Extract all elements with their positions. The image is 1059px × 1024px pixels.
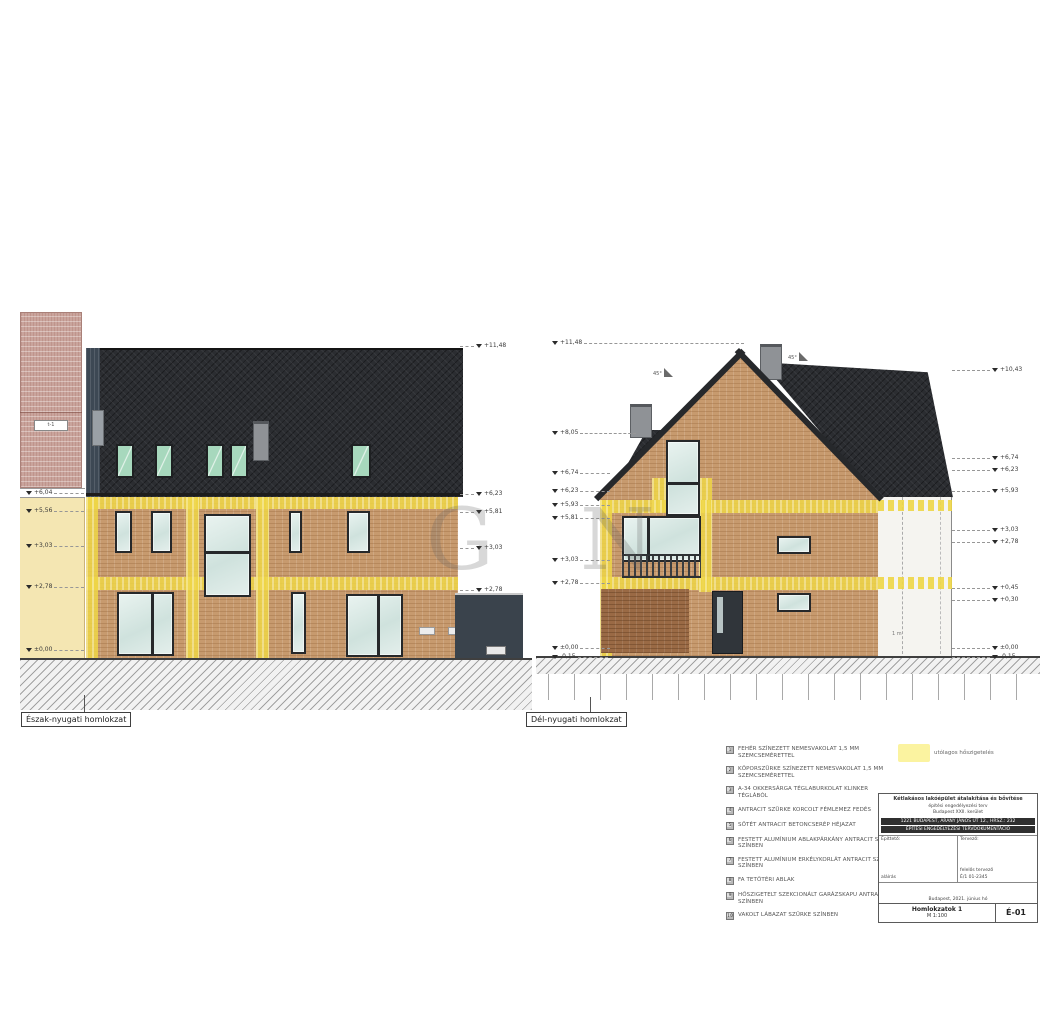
plaster-note: 1 m	[892, 631, 902, 637]
level-mark: +6,74	[552, 468, 610, 478]
level-value: +6,23	[560, 488, 578, 494]
neighbor-tag-plate: t-1	[34, 420, 68, 431]
material-cube-icon: 3	[726, 786, 734, 794]
window-upper-3	[289, 511, 302, 553]
level-mark: +6,23	[552, 486, 610, 496]
level-value: +3,03	[484, 545, 502, 551]
neighbor-divider-line	[20, 412, 82, 413]
level-value: +3,03	[560, 557, 578, 563]
elevation-label-right: Dél-nyugati homlokzat	[526, 712, 627, 727]
level-value: +6,23	[1000, 467, 1018, 473]
level-triangle-icon	[992, 586, 998, 593]
legend-item: 3A-34 OKKERSÁRGA TÉGLABURKOLAT KLINKER T…	[726, 786, 898, 799]
title-block: Kétlakásos lakóépület átalakítása és bőv…	[878, 793, 1038, 923]
level-value: ±0,00	[1000, 645, 1018, 651]
insulation-band-mid	[86, 577, 458, 590]
level-value: -0,15	[1000, 654, 1016, 660]
legend-item: 1FEHÉR SZÍNEZETT NEMESVAKOLAT 1,5 MM SZE…	[726, 746, 898, 759]
level-mark: +5,93	[552, 500, 610, 510]
highlight-label: utólagos hőszigetelés	[934, 750, 994, 756]
designer-label: Tervező:	[960, 837, 1035, 842]
level-triangle-icon	[26, 491, 32, 498]
level-value: +5,93	[1000, 488, 1018, 494]
highlight-swatch	[898, 744, 930, 762]
neighbor-wall-cream	[20, 498, 85, 660]
level-triangle-icon	[26, 648, 32, 655]
level-mark: +2,78	[460, 585, 502, 595]
legend-item: 2KŐPORSZÜRKE SZÍNEZETT NEMESVAKOLAT 1,5 …	[726, 766, 898, 779]
leader-line	[460, 346, 474, 347]
leader-line	[580, 560, 610, 561]
level-value: ±0,00	[560, 645, 578, 651]
label-leader-left	[84, 695, 85, 712]
material-cube-icon: 2	[726, 766, 734, 774]
skylight-3	[206, 444, 224, 478]
window-upper-2	[151, 511, 172, 553]
legend-item-text: SÖTÉT ANTRACIT BETONCSERÉP HÉJAZAT	[738, 822, 856, 829]
leader-line	[952, 648, 990, 649]
level-value: +6,74	[1000, 455, 1018, 461]
material-cube-icon: 10	[726, 912, 734, 920]
window-lower-2	[291, 592, 306, 654]
neighbor-tag-text: t-1	[48, 422, 55, 428]
leader-line	[952, 600, 990, 601]
leader-line	[580, 433, 636, 434]
sheet-number: É-01	[995, 904, 1037, 922]
strip-window-1	[777, 536, 811, 554]
level-mark: -0,15	[952, 652, 1016, 662]
leader-line	[460, 494, 474, 495]
neighbor-building-pink	[20, 312, 82, 488]
skylight-1	[116, 444, 134, 478]
garage	[455, 593, 523, 659]
legend-item: 9HŐSZIGETELT SZEKCIONÁLT GARÁZSKAPU ANTR…	[726, 892, 898, 905]
level-mark: +2,78	[952, 537, 1018, 547]
level-triangle-icon	[552, 341, 558, 348]
material-cube-icon: 6	[726, 837, 734, 845]
material-cube-icon: 4	[726, 807, 734, 815]
material-cube-icon: 1	[726, 746, 734, 754]
level-mark: +2,78	[552, 578, 610, 588]
leader-line	[952, 542, 990, 543]
leader-line	[580, 491, 610, 492]
level-value: +8,05	[560, 430, 578, 436]
leader-line	[580, 648, 610, 649]
level-triangle-icon	[992, 540, 998, 547]
documentation-bar: ÉPÍTÉSI ENGEDÉLYEZÉSI TERVDOKUMENTÁCIÓ	[881, 826, 1035, 833]
designer-license: É/1 01-2345	[960, 875, 1035, 881]
level-mark: +5,81	[460, 507, 502, 517]
ground-hatch-left	[20, 658, 532, 710]
level-value: +6,04	[34, 490, 52, 496]
window-stairwell	[204, 514, 251, 597]
sheet-scale: M 1:100	[879, 913, 995, 919]
level-mark: +11,48	[552, 338, 744, 348]
leader-line	[952, 588, 990, 589]
legend-item: 8FA TETŐTÉRI ABLAK	[726, 877, 898, 885]
level-mark: +10,43	[952, 365, 1022, 375]
window-upper-1	[115, 511, 132, 553]
insulation-band-top	[86, 497, 458, 509]
level-value: +11,48	[560, 340, 582, 346]
title-block-body: Építtető: aláírás Tervező: felelős terve…	[879, 835, 1037, 883]
level-triangle-icon	[992, 468, 998, 475]
insulation-strip-3	[256, 497, 269, 660]
level-triangle-icon	[992, 368, 998, 375]
level-triangle-icon	[26, 509, 32, 516]
level-value: +2,78	[34, 584, 52, 590]
level-value: +2,78	[1000, 539, 1018, 545]
gable-window	[666, 440, 700, 516]
level-value: +5,81	[560, 515, 578, 521]
level-triangle-icon	[26, 585, 32, 592]
balcony-railing	[622, 554, 701, 578]
legend-item-text: ANTRACIT SZÜRKE KORCOLT FÉMLEMEZ FEDÉS	[738, 807, 871, 814]
insulation-band-gable-top	[600, 500, 878, 513]
roof-pitch-symbol: 45°	[788, 352, 808, 361]
level-triangle-icon	[992, 489, 998, 496]
insulation-band-dashed-mid	[878, 577, 952, 589]
chimney-left-roof	[253, 421, 269, 461]
window-mullion	[151, 594, 154, 654]
legend-item-text: FESTETT ALUMÍNIUM ABLAKPÁRKÁNY ANTRACIT …	[738, 837, 898, 850]
level-value: +10,43	[1000, 367, 1022, 373]
leader-line	[952, 530, 990, 531]
material-cube-icon: 9	[726, 892, 734, 900]
level-triangle-icon	[552, 471, 558, 478]
insulation-band-dashed-top	[878, 500, 952, 511]
level-mark: +8,05	[552, 428, 636, 438]
level-triangle-icon	[992, 598, 998, 605]
window-transom	[206, 551, 249, 554]
level-triangle-icon	[552, 581, 558, 588]
elevation-label-left-text: Észak-nyugati homlokzat	[26, 715, 126, 724]
level-value: +6,23	[484, 491, 502, 497]
level-value: +5,81	[484, 509, 502, 515]
address-bar: 1221 BUDAPEST, ARANY JÁNOS ÚT 12., HRSZ.…	[881, 818, 1035, 825]
level-mark: +5,81	[552, 513, 610, 523]
slope-triangle-icon	[664, 368, 673, 377]
roof-pitch-value: 45°	[788, 355, 797, 361]
leader-line	[952, 491, 990, 492]
level-triangle-icon	[476, 546, 482, 553]
client-note: aláírás	[881, 875, 955, 881]
front-door	[712, 591, 743, 654]
sliding-door	[346, 594, 403, 657]
sheet-title: Homlokzatok 1	[879, 906, 995, 913]
project-title: Kétlakásos lakóépület átalakítása és bőv…	[879, 796, 1037, 804]
leader-line	[952, 657, 990, 658]
level-triangle-icon	[552, 558, 558, 565]
material-cube-icon: 7	[726, 857, 734, 865]
legend-item: 4ANTRACIT SZÜRKE KORCOLT FÉMLEMEZ FEDÉS	[726, 807, 898, 815]
level-mark: +6,74	[952, 453, 1018, 463]
level-mark: +6,04	[26, 488, 84, 498]
title-block-header: Kétlakásos lakóépület átalakítása és bőv…	[879, 794, 1037, 817]
leader-line	[584, 343, 744, 344]
level-value: -0,15	[560, 654, 576, 660]
designer-note: felelős tervező É/1 01-2345	[960, 868, 1035, 881]
level-value: +3,03	[34, 543, 52, 549]
label-leader-right	[590, 697, 591, 712]
level-value: +0,45	[1000, 585, 1018, 591]
leader-line	[460, 590, 474, 591]
material-cube-icon: 5	[726, 822, 734, 830]
door-glazing	[717, 597, 723, 633]
leader-line	[460, 512, 474, 513]
ground-piles	[548, 674, 1040, 700]
client-cell: Építtető: aláírás	[879, 836, 958, 882]
leader-line	[580, 505, 610, 506]
legend-item-text: FEHÉR SZÍNEZETT NEMESVAKOLAT 1,5 MM SZEM…	[738, 746, 898, 759]
level-mark: +11,48	[460, 341, 506, 351]
level-value: ±0,00	[34, 647, 52, 653]
level-triangle-icon	[552, 503, 558, 510]
level-triangle-icon	[992, 528, 998, 535]
insulation-strip-2	[186, 497, 199, 660]
window-transom	[668, 482, 698, 485]
level-triangle-icon	[552, 655, 558, 662]
leader-line	[952, 470, 990, 471]
level-value: +6,74	[560, 470, 578, 476]
level-mark: -0,15	[552, 652, 608, 662]
strip-window-2	[777, 593, 811, 612]
level-mark: +2,78	[26, 582, 84, 592]
facade-vent-1	[419, 627, 435, 635]
legend-item-text: HŐSZIGETELT SZEKCIONÁLT GARÁZSKAPU ANTRA…	[738, 892, 898, 905]
legend-item-text: VAKOLT LÁBAZAT SZÜRKE SZÍNBEN	[738, 912, 838, 919]
level-triangle-icon	[552, 431, 558, 438]
legend-item-text: KŐPORSZÜRKE SZÍNEZETT NEMESVAKOLAT 1,5 M…	[738, 766, 898, 779]
level-triangle-icon	[476, 510, 482, 517]
leader-line	[54, 587, 84, 588]
leader-line	[580, 583, 610, 584]
level-value: +0,30	[1000, 597, 1018, 603]
window-upper-4	[347, 511, 370, 553]
client-label: Építtető:	[881, 837, 955, 842]
level-value: +11,48	[484, 343, 506, 349]
level-value: +5,93	[560, 502, 578, 508]
level-mark: +3,03	[26, 541, 84, 551]
leader-line	[580, 518, 610, 519]
elevation-label-left: Észak-nyugati homlokzat	[21, 712, 131, 727]
level-mark: +0,30	[952, 595, 1018, 605]
material-legend: 1FEHÉR SZÍNEZETT NEMESVAKOLAT 1,5 MM SZE…	[726, 746, 898, 927]
leader-line	[578, 657, 608, 658]
leader-line	[54, 493, 84, 494]
level-triangle-icon	[552, 489, 558, 496]
level-value: +2,78	[484, 587, 502, 593]
level-triangle-icon	[476, 588, 482, 595]
material-cube-icon: 8	[726, 877, 734, 885]
level-mark: +3,03	[460, 543, 502, 553]
legend-item: 5SÖTÉT ANTRACIT BETONCSERÉP HÉJAZAT	[726, 822, 898, 830]
leader-line	[952, 370, 990, 371]
level-triangle-icon	[476, 492, 482, 499]
legend-item-text: FESTETT ALUMÍNIUM ERKÉLYKORLÁT ANTRACIT …	[738, 857, 898, 870]
level-mark: +6,23	[460, 489, 502, 499]
legend-item-text: FA TETŐTÉRI ABLAK	[738, 877, 795, 884]
level-mark: +5,93	[952, 486, 1018, 496]
roof-vent-left	[92, 410, 104, 446]
skylight-4	[230, 444, 248, 478]
level-triangle-icon	[992, 456, 998, 463]
level-value: +2,78	[560, 580, 578, 586]
garage-vent	[486, 646, 506, 655]
legend-item: 10VAKOLT LÁBAZAT SZÜRKE SZÍNBEN	[726, 912, 898, 920]
level-value: +5,56	[34, 508, 52, 514]
legend-item-text: A-34 OKKERSÁRGA TÉGLABURKOLAT KLINKER TÉ…	[738, 786, 898, 799]
slope-triangle-icon	[799, 352, 808, 361]
left-roof	[86, 348, 463, 497]
level-triangle-icon	[476, 344, 482, 351]
leader-line	[952, 458, 990, 459]
roof-pitch-symbol: 45°	[653, 368, 673, 377]
legend-item: 6FESTETT ALUMÍNIUM ABLAKPÁRKÁNY ANTRACIT…	[726, 837, 898, 850]
level-mark: +3,03	[952, 525, 1018, 535]
level-mark: +6,23	[952, 465, 1018, 475]
leader-line	[54, 650, 84, 651]
drawing-sheet: t-1 Észak-nyugati homlokzat +11,48	[0, 0, 1059, 1024]
insulation-strip-1	[86, 497, 98, 660]
leader-line	[54, 511, 84, 512]
roof-pitch-value: 45°	[653, 371, 662, 377]
legend-item: 7FESTETT ALUMÍNIUM ERKÉLYKORLÁT ANTRACIT…	[726, 857, 898, 870]
door-mullion	[377, 596, 380, 655]
sheet-title-cell: Homlokzatok 1 M 1:100	[879, 904, 996, 922]
level-mark: +5,56	[26, 506, 84, 516]
level-mark: ±0,00	[26, 645, 84, 655]
level-value: +3,03	[1000, 527, 1018, 533]
recessed-entry	[601, 589, 689, 653]
level-triangle-icon	[552, 516, 558, 523]
designer-cell: Tervező: felelős tervező É/1 01-2345	[958, 836, 1037, 882]
leader-line	[580, 473, 610, 474]
leader-line	[460, 548, 474, 549]
skylight-2	[155, 444, 173, 478]
level-mark: +3,03	[552, 555, 610, 565]
elevation-label-right-text: Dél-nyugati homlokzat	[531, 715, 622, 724]
skylight-5	[351, 444, 371, 478]
date-line: Budapest, 2021. június hó	[879, 897, 1037, 902]
project-location: Budapest XXII. kerület	[879, 810, 1037, 817]
window-lower-1	[117, 592, 174, 656]
title-block-footer: Homlokzatok 1 M 1:100 É-01	[879, 903, 1037, 922]
level-mark: +0,45	[952, 583, 1018, 593]
level-triangle-icon	[26, 544, 32, 551]
leader-line	[54, 546, 84, 547]
eave-line	[86, 493, 463, 496]
level-triangle-icon	[992, 655, 998, 662]
